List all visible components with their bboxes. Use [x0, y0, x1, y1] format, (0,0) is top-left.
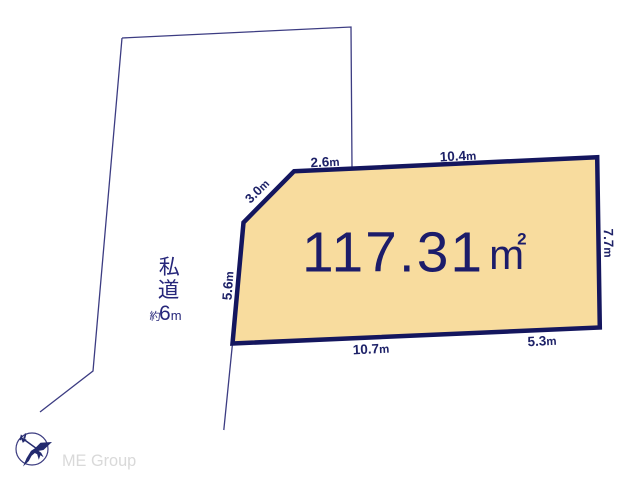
svg-text:2.6m: 2.6m — [310, 154, 340, 170]
svg-text:6m: 6m — [159, 302, 182, 325]
svg-text:117.31m2: 117.31m2 — [302, 221, 529, 285]
svg-text:5.3m: 5.3m — [527, 333, 557, 349]
svg-text:7.7m: 7.7m — [601, 228, 617, 257]
svg-text:10.4m: 10.4m — [439, 148, 476, 165]
svg-text:ME Group: ME Group — [62, 452, 136, 470]
svg-text:5.6m: 5.6m — [220, 271, 237, 301]
svg-text:10.7m: 10.7m — [352, 341, 389, 358]
